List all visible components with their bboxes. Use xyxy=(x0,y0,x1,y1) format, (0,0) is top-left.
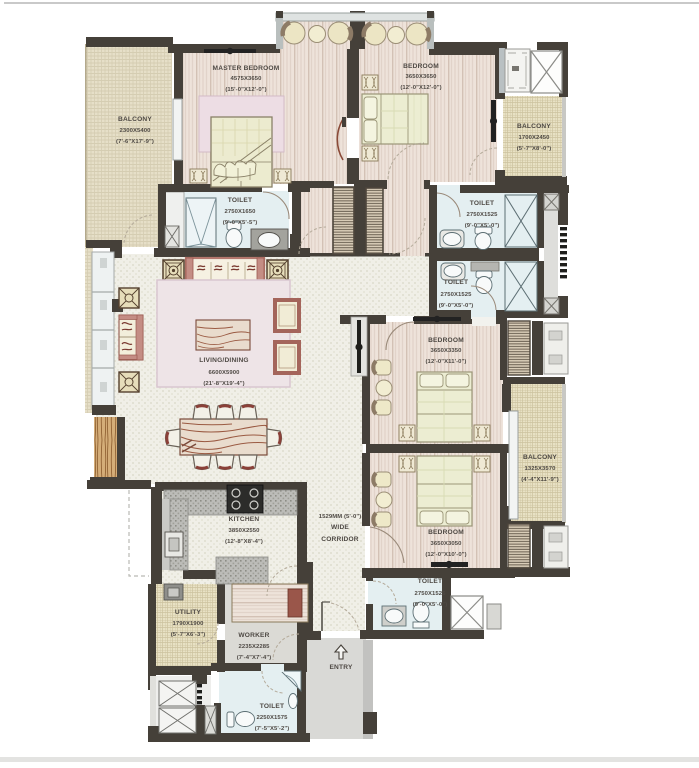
svg-text:(7'-6"X17'-9"): (7'-6"X17'-9") xyxy=(116,139,154,145)
svg-text:(12'-0"X10'-0"): (12'-0"X10'-0") xyxy=(425,552,466,558)
svg-text:BALCONY: BALCONY xyxy=(118,116,152,123)
svg-text:(4'-4"X11'-9"): (4'-4"X11'-9") xyxy=(521,477,559,483)
svg-text:3650X3650: 3650X3650 xyxy=(405,74,437,80)
svg-text:WORKER: WORKER xyxy=(238,632,269,639)
svg-text:6600X5900: 6600X5900 xyxy=(208,370,240,376)
svg-text:BEDROOM: BEDROOM xyxy=(428,337,464,344)
svg-text:1325X3570: 1325X3570 xyxy=(524,466,556,472)
svg-text:(9'-0"X5'-0"): (9'-0"X5'-0") xyxy=(465,223,500,229)
svg-text:TOILET: TOILET xyxy=(444,279,469,286)
svg-text:1790X1900: 1790X1900 xyxy=(172,621,204,627)
svg-text:LIVING/DINING: LIVING/DINING xyxy=(199,357,249,364)
svg-text:TOILET: TOILET xyxy=(470,200,495,207)
svg-text:(12'-0"X12'-0"): (12'-0"X12'-0") xyxy=(400,85,441,91)
svg-text:BEDROOM: BEDROOM xyxy=(428,529,464,536)
svg-text:CORRIDOR: CORRIDOR xyxy=(321,536,359,543)
svg-text:3850X2550: 3850X2550 xyxy=(228,528,260,534)
svg-text:(9'-0"X5'-0"): (9'-0"X5'-0") xyxy=(439,303,474,309)
svg-text:TOILET: TOILET xyxy=(418,578,443,585)
svg-text:UTILITY: UTILITY xyxy=(175,609,202,616)
svg-text:(12'-0"X11'-0"): (12'-0"X11'-0") xyxy=(426,359,467,365)
svg-text:3650X3050: 3650X3050 xyxy=(430,541,462,547)
svg-text:BALCONY: BALCONY xyxy=(523,454,557,461)
svg-text:TOILET: TOILET xyxy=(260,703,285,710)
svg-text:BALCONY: BALCONY xyxy=(517,123,551,130)
svg-text:(15'-0"X12'-0"): (15'-0"X12'-0") xyxy=(225,87,266,93)
svg-text:KITCHEN: KITCHEN xyxy=(229,516,260,523)
svg-text:1529MM (5'-0"): 1529MM (5'-0") xyxy=(319,514,362,520)
svg-text:4575X3650: 4575X3650 xyxy=(230,76,262,82)
svg-text:TOILET: TOILET xyxy=(228,197,253,204)
svg-text:(21'-8"X19'-4"): (21'-8"X19'-4") xyxy=(203,381,244,387)
svg-text:(5'-7"X8'-0"): (5'-7"X8'-0") xyxy=(517,146,552,152)
svg-text:(9'-0"X5'-0"): (9'-0"X5'-0") xyxy=(413,602,448,608)
svg-text:2750X1525: 2750X1525 xyxy=(414,591,446,597)
svg-text:1700X2450: 1700X2450 xyxy=(518,135,550,141)
svg-text:MASTER BEDROOM: MASTER BEDROOM xyxy=(213,65,280,72)
svg-text:(5'-7"X6'-3"): (5'-7"X6'-3") xyxy=(171,632,206,638)
svg-text:2300X5400: 2300X5400 xyxy=(119,128,151,134)
svg-text:ENTRY: ENTRY xyxy=(329,664,353,671)
svg-text:3650X3350: 3650X3350 xyxy=(430,348,462,354)
svg-text:2750X1525: 2750X1525 xyxy=(466,212,498,218)
svg-text:2750X1650: 2750X1650 xyxy=(224,209,256,215)
svg-text:BEDROOM: BEDROOM xyxy=(403,63,439,70)
svg-text:WIDE: WIDE xyxy=(331,524,349,531)
svg-text:(9'-0"X5'-5"): (9'-0"X5'-5") xyxy=(223,220,258,226)
svg-text:2250X1575: 2250X1575 xyxy=(256,715,288,721)
svg-text:2235X2285: 2235X2285 xyxy=(238,644,270,650)
svg-text:(12'-8"X8'-4"): (12'-8"X8'-4") xyxy=(225,539,263,545)
svg-text:(7'-4"X7'-4"): (7'-4"X7'-4") xyxy=(237,655,272,661)
svg-text:2750X1525: 2750X1525 xyxy=(440,292,472,298)
svg-text:(7'-5"X5'-2"): (7'-5"X5'-2") xyxy=(255,726,290,732)
